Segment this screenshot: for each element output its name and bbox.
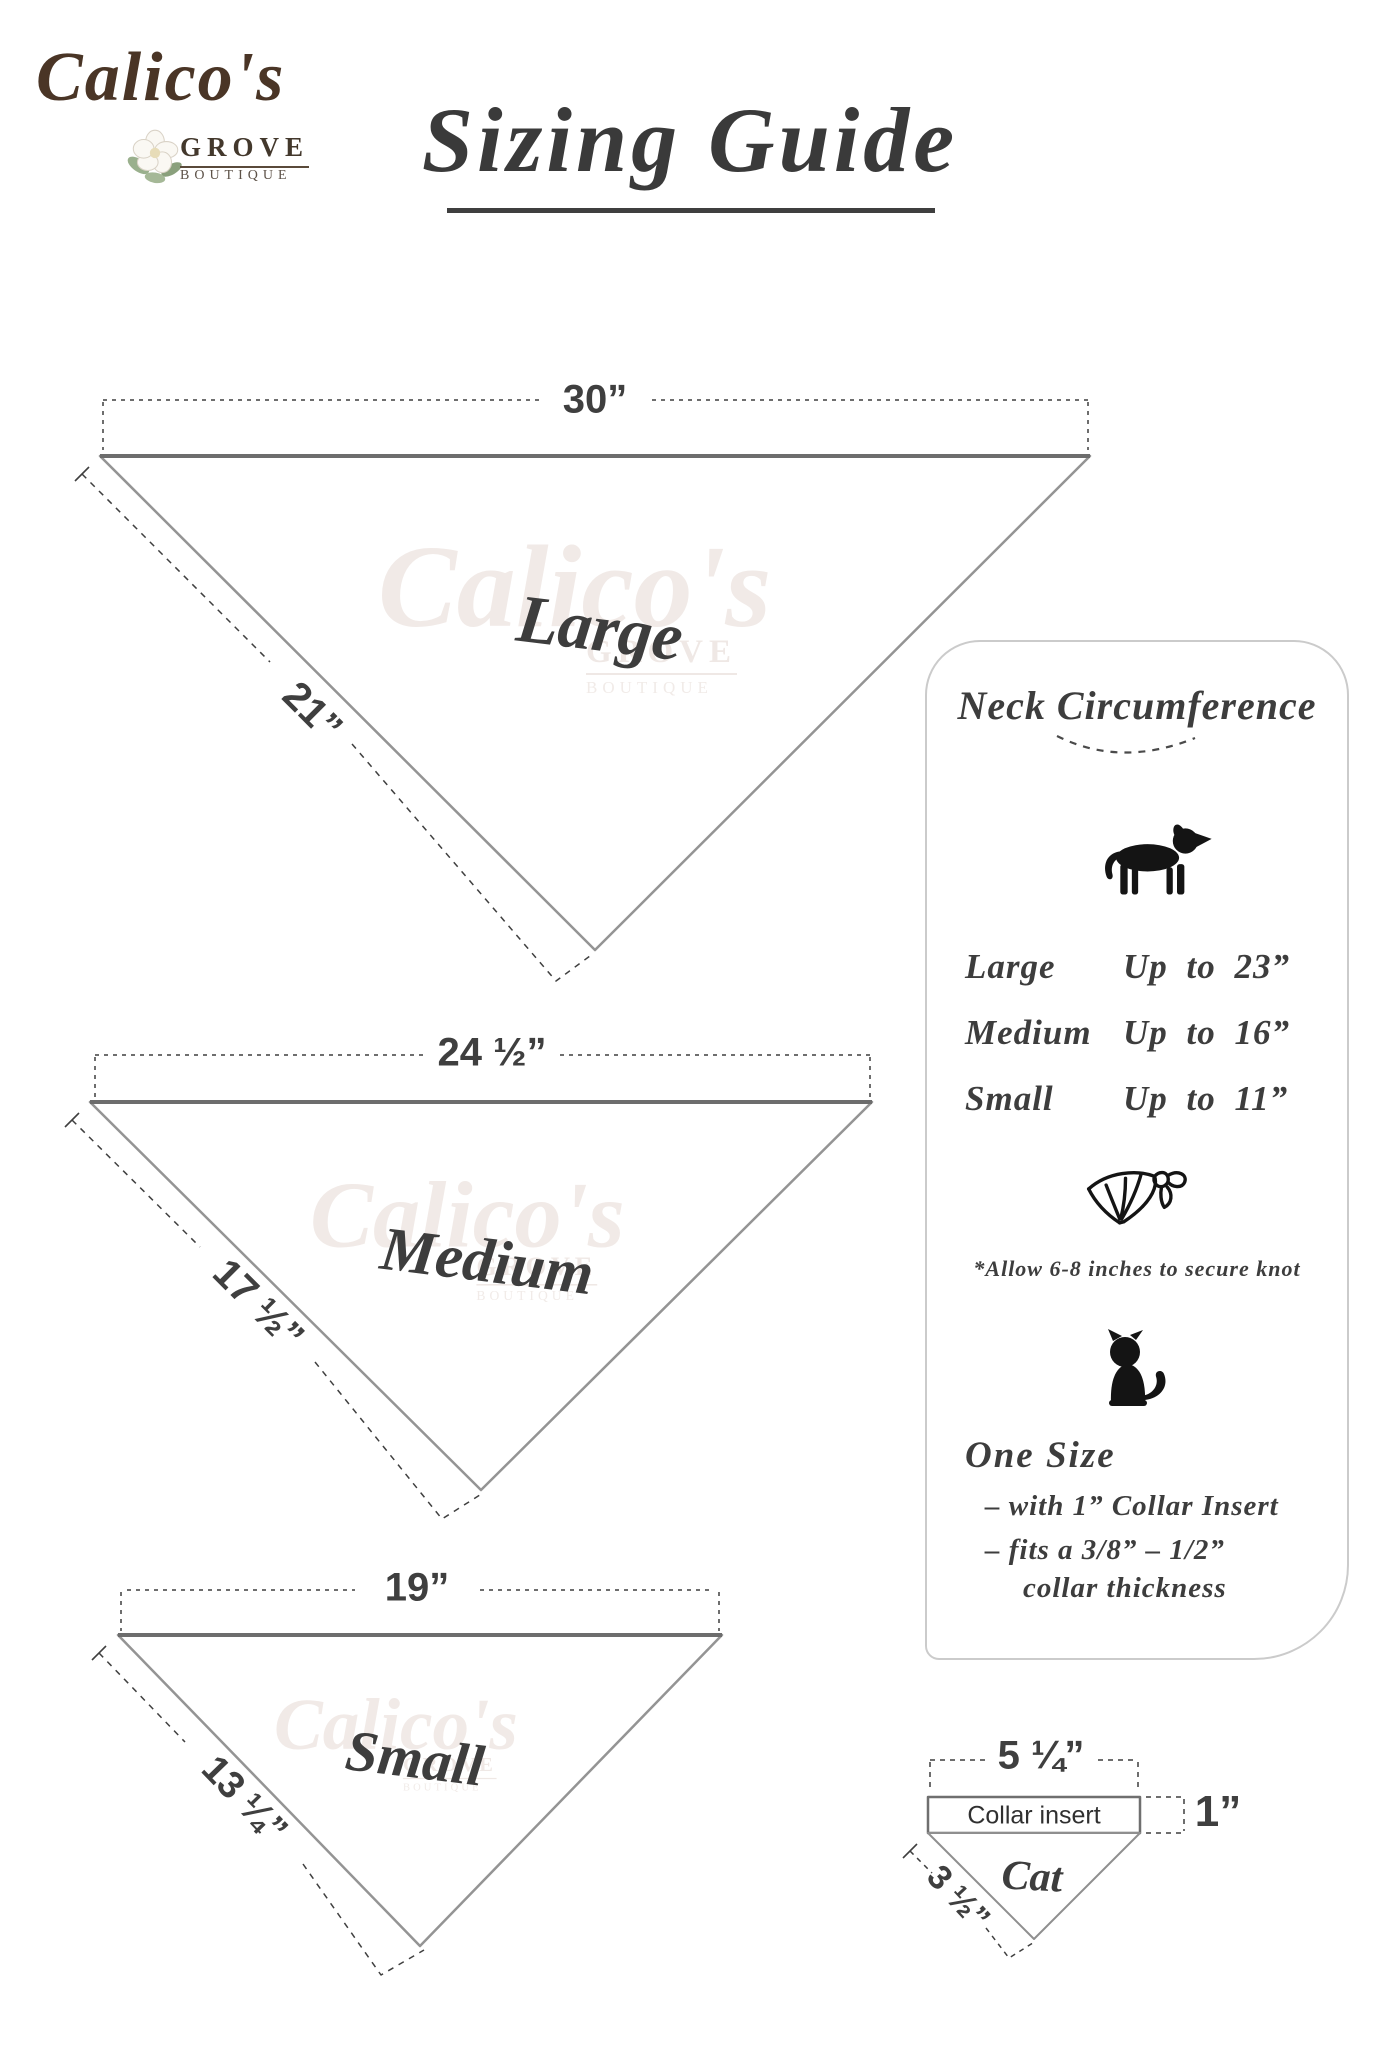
- table-row-small: Small Up to 11”: [965, 1066, 1325, 1132]
- cat-width-label: 5 ¼”: [998, 1734, 1085, 1779]
- neck-circumference-panel: Neck Circumference Large Up to 23”: [925, 640, 1349, 1660]
- sizing-guide-page: Calico's GROVE BOUTIQUE Calico's GROVE B…: [0, 0, 1376, 2060]
- title-underline: [447, 208, 935, 213]
- one-size-line: collar thickness: [1023, 1572, 1227, 1605]
- one-size-line: – with 1” Collar Insert: [985, 1490, 1279, 1523]
- small-side-dim-tick: [92, 1646, 106, 1660]
- row-label: Large: [965, 947, 1123, 987]
- page-title: Sizing Guide: [422, 87, 958, 193]
- brand-logo: Calico's GROVE BOUTIQUE: [36, 38, 326, 188]
- one-size-title: One Size: [965, 1434, 1116, 1477]
- one-size-line: – fits a 3/8” – 1/2”: [985, 1534, 1225, 1567]
- table-row-large: Large Up to 23”: [965, 934, 1325, 1000]
- dashed-smile-underline: [1055, 730, 1199, 766]
- brand-boutique: BOUTIQUE: [180, 168, 292, 184]
- table-row-medium: Medium Up to 16”: [965, 1000, 1325, 1066]
- row-value: Up to 23”: [1123, 947, 1290, 987]
- dog-icon: [1093, 818, 1219, 906]
- row-value: Up to 11”: [1123, 1079, 1288, 1119]
- cat-icon: [1091, 1328, 1181, 1418]
- brand-name: Calico's: [36, 38, 285, 118]
- row-label: Medium: [965, 1013, 1123, 1053]
- cat-side-dim-tick: [903, 1844, 917, 1858]
- panel-title: Neck Circumference: [927, 682, 1347, 729]
- large-width-label: 30”: [563, 378, 628, 423]
- neck-size-table: Large Up to 23” Medium Up to 16” Small U…: [965, 934, 1325, 1132]
- row-label: Small: [965, 1079, 1123, 1119]
- medium-width-label: 24 ½”: [438, 1031, 547, 1076]
- medium-side-dim-tick: [65, 1113, 79, 1127]
- bandana-icon: [1079, 1160, 1205, 1246]
- cat-size-label: Cat: [1000, 1851, 1063, 1902]
- insert-height-bracket: [1146, 1797, 1184, 1833]
- insert-height-label: 1”: [1195, 1787, 1241, 1837]
- brand-grove: GROVE: [180, 132, 309, 168]
- collar-insert-label: Collar insert: [967, 1802, 1100, 1831]
- large-side-dim-tick: [75, 467, 89, 481]
- flower-icon: [124, 124, 186, 186]
- knot-note: *Allow 6-8 inches to secure knot: [927, 1256, 1347, 1282]
- small-width-label: 19”: [385, 1566, 450, 1611]
- row-value: Up to 16”: [1123, 1013, 1290, 1053]
